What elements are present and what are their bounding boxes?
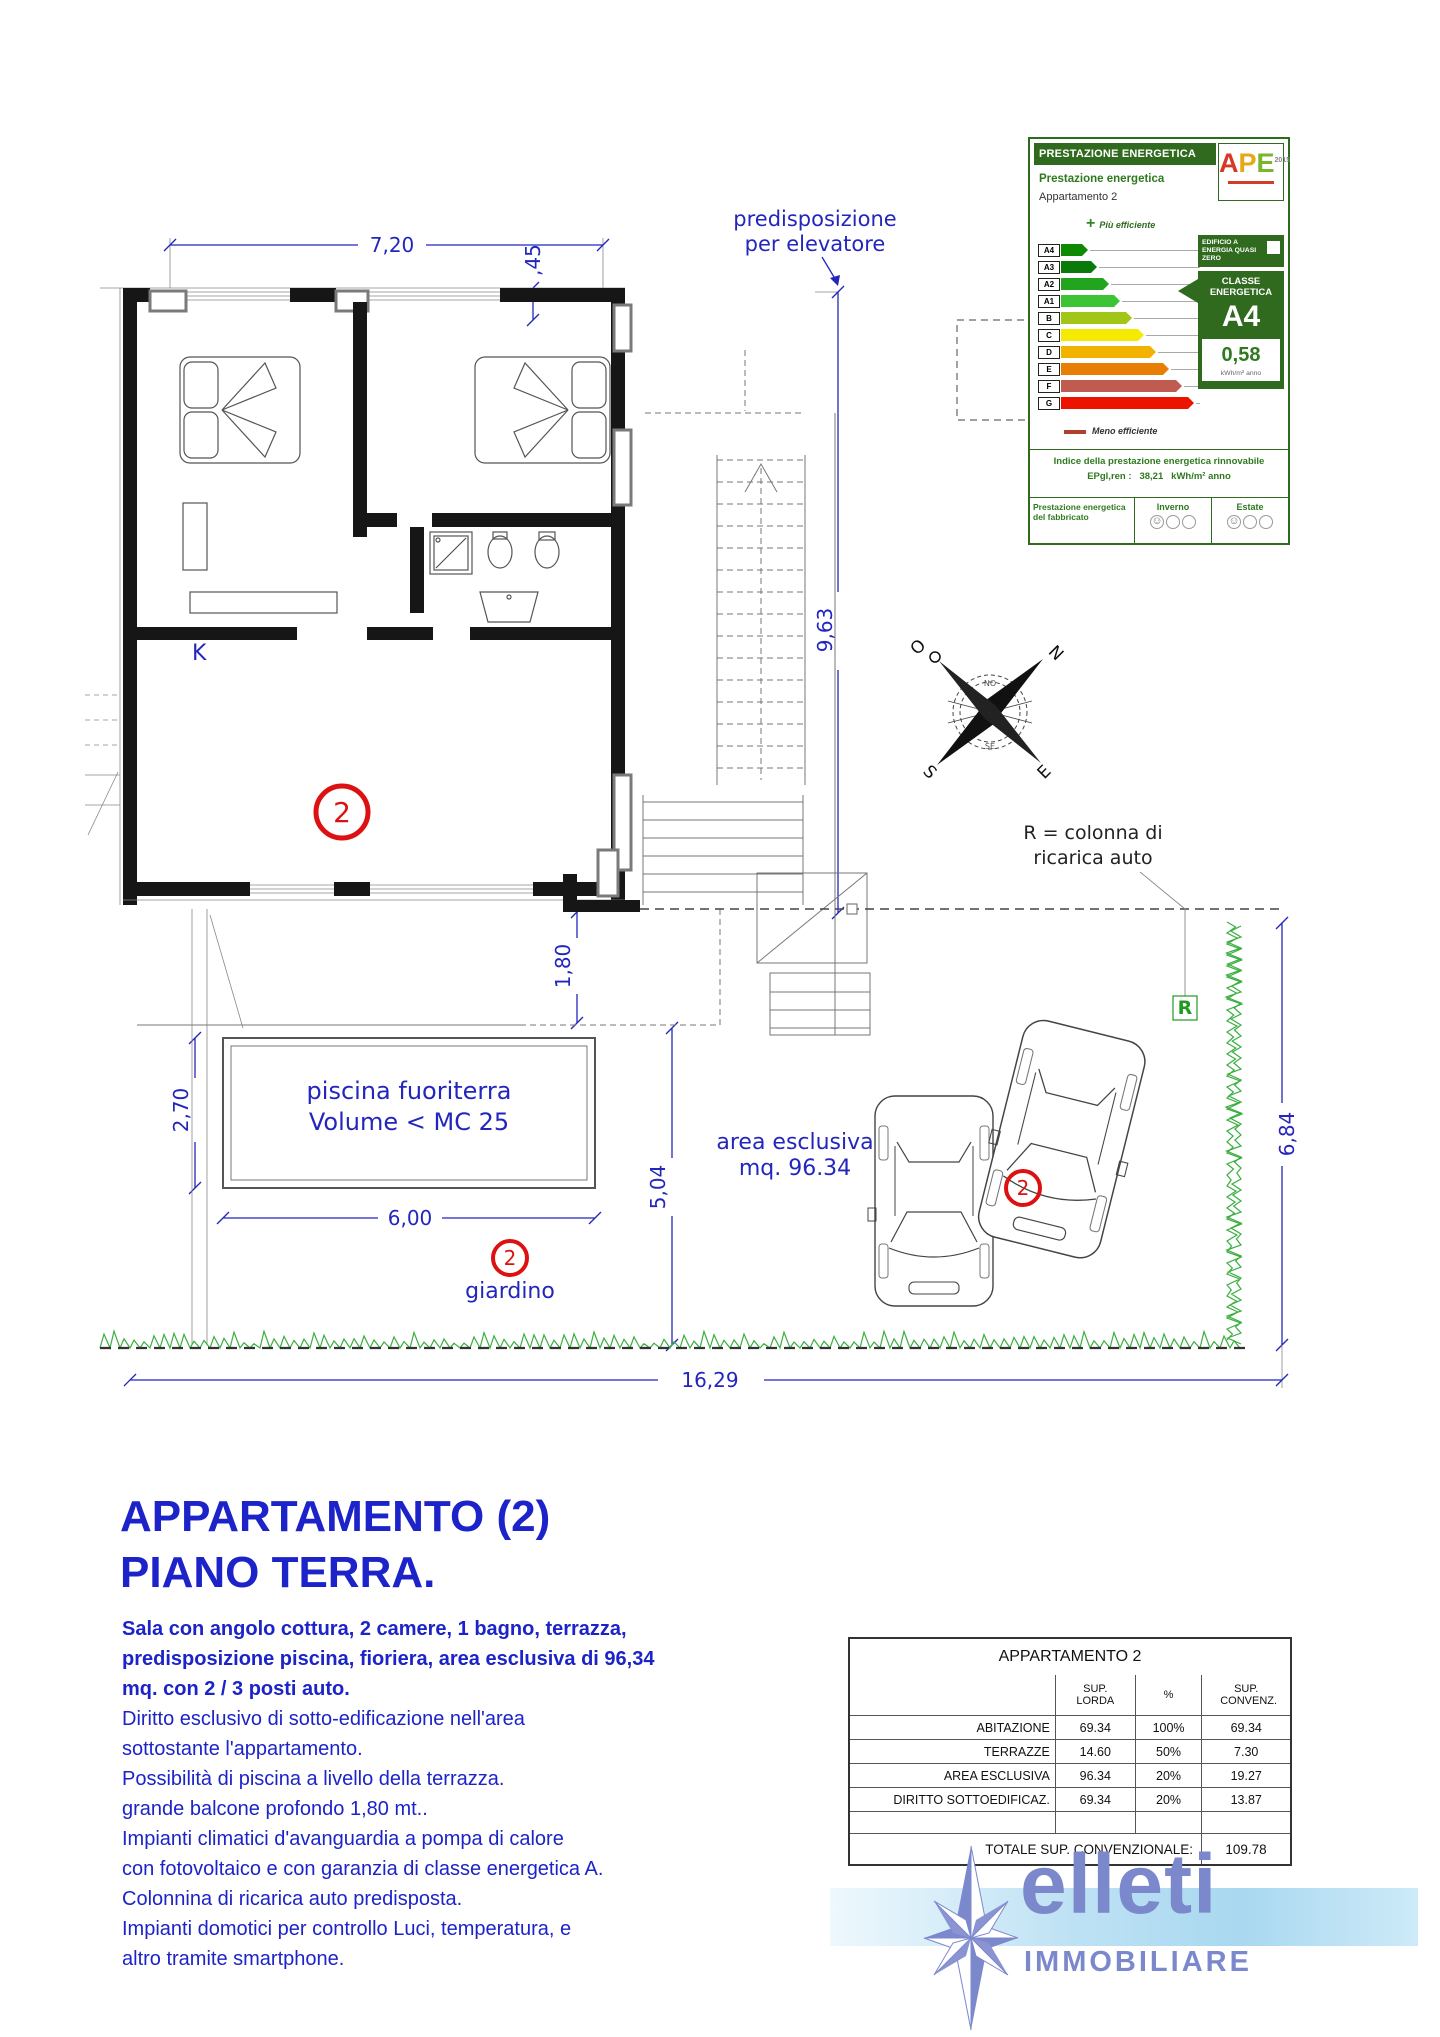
- svg-text:9,63: 9,63: [813, 608, 837, 653]
- description: Sala con angolo cottura, 2 camere, 1 bag…: [122, 1614, 782, 1974]
- svg-text:1,80: 1,80: [551, 944, 575, 989]
- smiley-icon: [1243, 515, 1257, 529]
- compass-rose: N O S E NO SE: [907, 636, 1067, 784]
- entry-steps: [757, 873, 870, 1035]
- description-line: sottostante l'appartamento.: [122, 1734, 782, 1764]
- ep-value: 0,58: [1204, 344, 1278, 367]
- energy-class-row: A4: [1038, 244, 1200, 256]
- more-efficient-label: +Più efficiente: [1086, 215, 1155, 233]
- table-header-row: SUP. LORDA % SUP. CONVENZ.: [850, 1675, 1290, 1716]
- table-title: APPARTAMENTO 2: [850, 1639, 1290, 1675]
- smiley-icon: [1166, 515, 1180, 529]
- energy-class-row: E: [1038, 363, 1200, 375]
- smiley-icon: [1150, 515, 1164, 529]
- svg-text:6,00: 6,00: [388, 1206, 433, 1230]
- svg-text:R = colonna di: R = colonna di: [1023, 822, 1162, 844]
- nzeb-box: EDIFICIO A ENERGIA QUASI ZERO: [1198, 235, 1284, 267]
- compass-star-icon: [906, 1838, 1036, 2037]
- dimension-9-63: 9,63: [813, 286, 844, 919]
- description-line: Sala con angolo cottura, 2 camere, 1 bag…: [122, 1614, 782, 1644]
- description-line: Possibilità di piscina a livello della t…: [122, 1764, 782, 1794]
- energy-class-row: A3: [1038, 261, 1200, 273]
- svg-text:6,84: 6,84: [1275, 1112, 1299, 1157]
- description-line: con fotovoltaico e con garanzia di class…: [122, 1854, 782, 1884]
- certificate-subject: Appartamento 2: [1039, 191, 1117, 203]
- description-line: Impianti climatici d'avanguardia a pompa…: [122, 1824, 782, 1854]
- bedroom-1-bed: [180, 357, 300, 463]
- bedroom-2-bed: [475, 357, 610, 463]
- bedroom-1-furniture: [183, 503, 337, 613]
- svg-text:E: E: [1034, 762, 1056, 784]
- fabric-performance-row: Prestazione energetica del fabbricato In…: [1030, 497, 1288, 543]
- grass: [100, 1331, 1240, 1348]
- svg-text:2: 2: [504, 1246, 517, 1270]
- dimension-0-45: ,45: [521, 244, 545, 326]
- energy-class-value: A4: [1202, 300, 1280, 334]
- smiley-icon: [1182, 515, 1196, 529]
- energy-class-row: C: [1038, 329, 1200, 341]
- surfaces-table: APPARTAMENTO 2 SUP. LORDA % SUP. CONVENZ…: [848, 1637, 1292, 1866]
- svg-text:2: 2: [1017, 1176, 1030, 1200]
- description-line: Diritto esclusivo di sotto-edificazione …: [122, 1704, 782, 1734]
- svg-text:N: N: [1044, 642, 1067, 665]
- svg-text:NO: NO: [984, 679, 996, 688]
- svg-text:Volume < MC 25: Volume < MC 25: [309, 1108, 509, 1136]
- ape-logo: APE2015: [1218, 143, 1284, 201]
- table-row: AREA ESCLUSIVA 96.34 20% 19.27: [850, 1764, 1290, 1788]
- certificate-header: PRESTAZIONE ENERGETICA: [1034, 143, 1216, 165]
- stairwell: [643, 350, 835, 1035]
- logo-subtitle: IMMOBILIARE: [1024, 1946, 1252, 1979]
- pool: piscina fuoriterra Volume < MC 25: [223, 1038, 595, 1188]
- class-panel: EDIFICIO A ENERGIA QUASI ZERO CLASSEENER…: [1198, 235, 1284, 389]
- smiley-icon: [1259, 515, 1273, 529]
- elevator-note: predisposizione per elevatore: [733, 207, 896, 286]
- logo-name: elleti: [1020, 1836, 1217, 1933]
- agency-logo: elleti IMMOBILIARE: [818, 1852, 1418, 2027]
- svg-text:16,29: 16,29: [681, 1368, 738, 1392]
- dimension-1-80: 1,80: [551, 906, 583, 1029]
- svg-text:predisposizione: predisposizione: [733, 207, 896, 231]
- table-row: DIRITTO SOTTOEDIFICAZ. 69.34 20% 13.87: [850, 1788, 1290, 1812]
- table-row: ABITAZIONE 69.34 100% 69.34: [850, 1716, 1290, 1740]
- car-2: [967, 1014, 1157, 1264]
- red-dash-icon: [1064, 430, 1086, 434]
- energy-class-row: A1: [1038, 295, 1200, 307]
- description-line: Colonnina di ricarica auto predisposta.: [122, 1884, 782, 1914]
- description-line: grande balcone profondo 1,80 mt..: [122, 1794, 782, 1824]
- neighbour-stair-hatch: [85, 288, 120, 905]
- energy-class-row: D: [1038, 346, 1200, 358]
- svg-text:piscina fuoriterra: piscina fuoriterra: [307, 1077, 512, 1105]
- description-line: mq. con 2 / 3 posti auto.: [122, 1674, 782, 1704]
- certificate-section-title: Prestazione energetica: [1039, 173, 1164, 185]
- kitchen-label: K: [192, 641, 207, 666]
- unit-badge-living: 2: [316, 786, 368, 838]
- garden-badge: 2 giardino: [465, 1241, 555, 1304]
- energy-certificate: PRESTAZIONE ENERGETICA APE2015 Prestazio…: [1028, 137, 1290, 545]
- description-line: Impianti domotici per controllo Luci, te…: [122, 1914, 782, 1944]
- exclusive-area-label: area esclusiva mq. 96.34: [716, 1130, 873, 1181]
- svg-text:O: O: [907, 636, 931, 660]
- svg-text:2: 2: [333, 796, 351, 829]
- description-line: predisposizione piscina, fioriera, area …: [122, 1644, 782, 1674]
- svg-text:ricarica auto: ricarica auto: [1033, 847, 1152, 869]
- dimension-2-70: 2,70: [169, 1032, 201, 1194]
- brochure-page: 7,20 ,45 9,63 1,80 2,70: [0, 0, 1440, 2037]
- energy-class-scale: A4A3A2A1BCDEFG: [1038, 244, 1200, 414]
- dimension-5-04: 5,04: [646, 1022, 678, 1351]
- energy-class-row: F: [1038, 380, 1200, 392]
- svg-text:area esclusiva: area esclusiva: [716, 1130, 873, 1155]
- energy-class-row: B: [1038, 312, 1200, 324]
- energy-class-row: G: [1038, 397, 1200, 409]
- ep-unit: kWh/m² anno: [1204, 370, 1278, 377]
- svg-text:2,70: 2,70: [169, 1088, 193, 1133]
- svg-text:SE: SE: [985, 742, 995, 751]
- svg-text:S: S: [919, 762, 941, 784]
- description-line: altro tramite smartphone.: [122, 1944, 782, 1974]
- svg-text:mq. 96.34: mq. 96.34: [739, 1156, 851, 1181]
- dimension-16-29: 16,29: [124, 1345, 1288, 1392]
- dimension-6-00: 6,00: [217, 1206, 601, 1230]
- svg-text:giardino: giardino: [465, 1279, 555, 1304]
- table-empty-row: [850, 1812, 1290, 1834]
- page-subtitle: PIANO TERRA.: [120, 1548, 435, 1598]
- svg-text:per elevatore: per elevatore: [745, 232, 886, 256]
- class-arrow-icon: [1178, 279, 1198, 303]
- checkbox-icon: [1267, 241, 1280, 254]
- less-efficient-label: Meno efficiente: [1064, 426, 1157, 436]
- svg-text:5,04: 5,04: [646, 1165, 670, 1210]
- car-1: [868, 1096, 1000, 1306]
- bathroom-fixtures: [430, 532, 559, 622]
- renewable-index: Indice della prestazione energetica rinn…: [1030, 449, 1288, 496]
- smiley-icon: [1227, 515, 1241, 529]
- page-title: APPARTAMENTO (2): [120, 1492, 550, 1542]
- plus-icon: +: [1086, 215, 1095, 232]
- table-row: TERRAZZE 14.60 50% 7.30: [850, 1740, 1290, 1764]
- parking-boundary: [640, 904, 1280, 914]
- energy-class-row: A2: [1038, 278, 1200, 290]
- svg-text:R: R: [1178, 997, 1193, 1019]
- charger-note: R = colonna di ricarica auto R: [1023, 822, 1197, 1020]
- dimension-6-84: 6,84: [1275, 917, 1299, 1351]
- svg-text:7,20: 7,20: [370, 233, 415, 257]
- svg-text:,45: ,45: [521, 244, 545, 276]
